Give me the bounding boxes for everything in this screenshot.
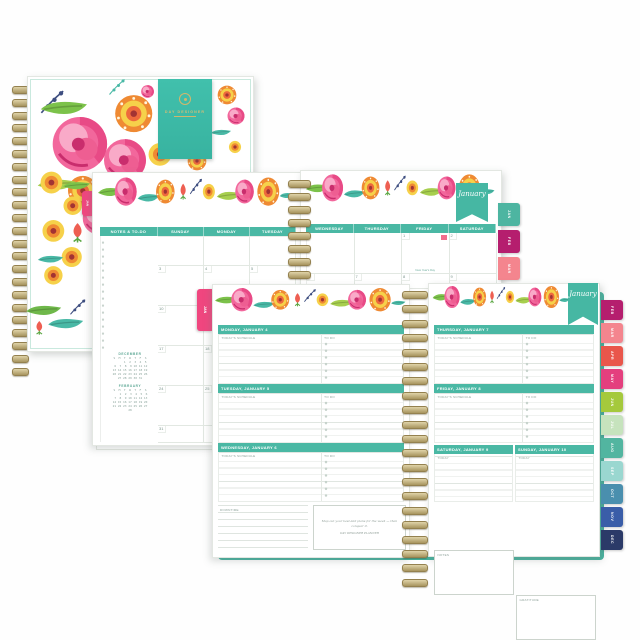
- month-tab-aug: AUG: [601, 438, 623, 458]
- todo-column: TO DO: [523, 334, 593, 383]
- weekly-right-day-blocks: THURSDAY, JANUARY 7TODAY'S SCHEDULETO DO…: [434, 325, 594, 443]
- day-body: TODAY'S SCHEDULETO DO: [434, 393, 594, 443]
- column-header: MONDAY: [204, 227, 250, 236]
- weekend-body: TODAY: [434, 454, 513, 502]
- date-number: 25: [204, 386, 212, 393]
- date-number: 10: [158, 306, 166, 313]
- monthly-notes-column: DECEMBERS M T W T F S 1 2 3 4 5 6 7 8 9 …: [100, 236, 160, 442]
- spiral-loop: [288, 271, 311, 279]
- day-cell: [204, 237, 250, 266]
- column-header: THURSDAY: [354, 224, 402, 233]
- downtime-section: DOWNTIME: [218, 505, 308, 549]
- day-header-bar: TUESDAY, JANUARY 5: [218, 384, 404, 393]
- schedule-column: TODAY'S SCHEDULE: [435, 393, 523, 442]
- month-tab-may: MAY: [601, 369, 623, 389]
- column-header: SUNDAY: [158, 227, 204, 236]
- todo-checkcircles: [324, 341, 329, 382]
- day-header-bar: FRIDAY, JANUARY 8: [434, 384, 594, 393]
- column-header: FRIDAY: [401, 224, 449, 233]
- date-number: 8: [402, 274, 410, 281]
- date-number: 5: [250, 266, 258, 273]
- today-label: TODAY: [519, 456, 530, 460]
- day-cell: 2: [450, 233, 498, 274]
- todo-label: TO DO: [526, 395, 537, 399]
- weekly-jan-side-tab: JAN: [197, 289, 213, 331]
- schedule-label: TODAY'S SCHEDULE: [222, 454, 256, 458]
- todo-checkcircles: [324, 400, 329, 441]
- gold-crest-icon: [179, 93, 191, 105]
- todo-checkcircles: [324, 459, 329, 500]
- day-body: TODAY'S SCHEDULETO DO: [434, 334, 594, 384]
- today-label: TODAY: [438, 456, 449, 460]
- cover-monogram-band: DAY DESIGNER: [158, 79, 212, 159]
- weekend-block: SATURDAY, JANUARY 9TODAY: [434, 445, 513, 502]
- weekly-day-block: WEDNESDAY, JANUARY 6TODAY'S SCHEDULETO D…: [218, 443, 404, 502]
- day-cell: 17: [158, 346, 204, 386]
- spiral-loop: [288, 245, 311, 253]
- notes-box: NOTES: [434, 550, 514, 595]
- todo-column: TO DO: [322, 393, 403, 442]
- day-body: TODAY'S SCHEDULETO DO: [218, 334, 404, 384]
- day-header-bar: SATURDAY, JANUARY 9: [434, 445, 513, 454]
- quote-line2: DAY DESIGNER PLANNER: [340, 531, 379, 536]
- spiral-loop: [402, 464, 428, 472]
- month-tab-apr: APR: [601, 346, 623, 366]
- date-number: 9: [450, 274, 458, 281]
- schedule-label: TODAY'S SCHEDULE: [438, 336, 472, 340]
- day-header-bar: THURSDAY, JANUARY 7: [434, 325, 594, 334]
- schedule-label: TODAY'S SCHEDULE: [438, 395, 472, 399]
- date-number: 1: [402, 233, 410, 240]
- spiral-loop: [402, 507, 428, 515]
- day-body: TODAY'S SCHEDULETO DO: [218, 452, 404, 502]
- column-header: SATURDAY: [449, 224, 497, 233]
- spiral-loop: [288, 180, 311, 188]
- weekly-spiral-binding: [402, 291, 428, 593]
- weekly-day-block: THURSDAY, JANUARY 7TODAY'S SCHEDULETO DO: [434, 325, 594, 384]
- spiral-loop: [288, 219, 311, 227]
- mini-calendar: DECEMBERS M T W T F S 1 2 3 4 5 6 7 8 9 …: [103, 352, 157, 380]
- mini-calendar-row: 27 28 29 30 31: [103, 377, 157, 381]
- todo-label: TO DO: [526, 336, 537, 340]
- mini-calendar-row: 28: [103, 409, 157, 413]
- todo-column: TO DO: [523, 393, 593, 442]
- spiral-loop: [288, 193, 311, 201]
- spiral-loop: [402, 320, 428, 328]
- spiral-loop: [402, 449, 428, 457]
- day-header-bar: MONDAY, JANUARY 4: [218, 325, 404, 334]
- weekly-left-day-blocks: MONDAY, JANUARY 4TODAY'S SCHEDULETO DOTU…: [218, 325, 404, 502]
- spiral-loop: [402, 478, 428, 486]
- spiral-loop: [402, 550, 428, 558]
- weekly-day-block: TUESDAY, JANUARY 5TODAY'S SCHEDULETO DO: [218, 384, 404, 443]
- spiral-loop: [402, 392, 428, 400]
- month-tab-mar: MAR: [498, 257, 520, 280]
- day-cell: [307, 233, 355, 274]
- monthly-left-header-row: NOTES & TO-DOSUNDAYMONDAYTUESDAY: [100, 227, 296, 236]
- spiral-loop: [402, 564, 428, 572]
- spiral-loop: [12, 355, 29, 363]
- weekend-block: SUNDAY, JANUARY 10TODAY: [515, 445, 594, 502]
- todo-checkcircles: [525, 341, 530, 382]
- date-number: 18: [204, 346, 212, 353]
- spiral-loop: [402, 349, 428, 357]
- month-tab-dec: DEC: [601, 530, 623, 550]
- day-cell: 24: [158, 386, 204, 426]
- spiral-loop: [402, 406, 428, 414]
- column-header: NOTES & TO-DO: [100, 227, 158, 236]
- date-number: 17: [158, 346, 166, 353]
- weekend-body: TODAY: [515, 454, 594, 502]
- monthly-right-header-row: WEDNESDAYTHURSDAYFRIDAYSATURDAY: [306, 224, 496, 233]
- spiral-loop: [402, 305, 428, 313]
- mini-calendar: FEBRUARYS M T W T F S 1 2 3 4 5 6 7 8 9 …: [103, 384, 157, 412]
- spiral-loop: [402, 492, 428, 500]
- spiral-loop: [402, 435, 428, 443]
- day-body: TODAY'S SCHEDULETO DO: [218, 393, 404, 443]
- schedule-column: TODAY'S SCHEDULE: [219, 334, 322, 383]
- month-tab-jul: JUL: [601, 415, 623, 435]
- day-cell: 1New Year's Day: [402, 233, 450, 274]
- month-row: 1New Year's Day2: [307, 233, 497, 274]
- spiral-loop: [288, 232, 311, 240]
- day-header-bar: SUNDAY, JANUARY 10: [515, 445, 594, 454]
- month-tab-feb: FEB: [498, 230, 520, 253]
- product-photo: DAY DESIGNER JAN January NOTES & TO-DOSU…: [0, 0, 640, 640]
- month-tab-nov: NOV: [601, 507, 623, 527]
- date-number: 24: [158, 386, 166, 393]
- schedule-column: TODAY'S SCHEDULE: [219, 393, 322, 442]
- spiral-loop: [402, 377, 428, 385]
- holiday-label: New Year's Day: [402, 268, 449, 272]
- spiral-loop: [402, 521, 428, 529]
- spiral-loop: [402, 291, 428, 299]
- quote-line1: Map out your best-laid plans for the wee…: [318, 519, 401, 529]
- gratitude-box: GRATITUDE: [516, 595, 596, 640]
- notes-label: NOTES: [438, 553, 450, 557]
- schedule-column: TODAY'S SCHEDULE: [435, 334, 523, 383]
- month-tab-jan: JAN: [498, 203, 520, 226]
- gratitude-label: GRATITUDE: [520, 598, 539, 602]
- month-tab-oct: OCT: [601, 484, 623, 504]
- spiral-loop: [402, 579, 428, 587]
- schedule-column: TODAY'S SCHEDULE: [219, 452, 322, 501]
- spiral-loop: [12, 368, 29, 376]
- day-cell: [355, 233, 403, 274]
- day-header-bar: WEDNESDAY, JANUARY 6: [218, 443, 404, 452]
- month-tab-jun: JUN: [601, 392, 623, 412]
- date-number: 7: [355, 274, 363, 281]
- weekly-day-block: FRIDAY, JANUARY 8TODAY'S SCHEDULETO DO: [434, 384, 594, 443]
- schedule-label: TODAY'S SCHEDULE: [222, 336, 256, 340]
- todo-label: TO DO: [324, 395, 335, 399]
- todo-column: TO DO: [322, 334, 403, 383]
- todo-label: TO DO: [324, 336, 335, 340]
- schedule-label: TODAY'S SCHEDULE: [222, 395, 256, 399]
- month-tab-sep: SEP: [601, 461, 623, 481]
- brand-rule: [174, 116, 196, 117]
- date-number: 3: [158, 266, 166, 273]
- holiday-flag: [441, 235, 447, 240]
- day-cell: [158, 237, 204, 266]
- spiral-loop: [402, 334, 428, 342]
- spiral-loop: [288, 258, 311, 266]
- date-number: 2: [450, 233, 458, 240]
- column-header: WEDNESDAY: [306, 224, 354, 233]
- month-tab-feb: FEB: [601, 300, 623, 320]
- date-number: 4: [204, 266, 212, 273]
- month-tab-mar: MAR: [601, 323, 623, 343]
- todo-label: TO DO: [324, 454, 335, 458]
- date-number: 31: [158, 426, 166, 433]
- todo-checkcircles: [525, 400, 530, 441]
- spiral-loop: [402, 363, 428, 371]
- weekly-day-block: MONDAY, JANUARY 4TODAY'S SCHEDULETO DO: [218, 325, 404, 384]
- weekend-blocks: SATURDAY, JANUARY 9TODAYSUNDAY, JANUARY …: [434, 445, 594, 502]
- month-row: [158, 237, 296, 266]
- todo-column: TO DO: [322, 452, 403, 501]
- downtime-label: DOWNTIME: [220, 508, 239, 512]
- notes-ruled-lines: [101, 238, 159, 350]
- weekly-month-tabs: FEBMARAPRMAYJUNJULAUGSEPOCTNOVDEC: [601, 300, 623, 553]
- day-cell: 31: [158, 426, 204, 443]
- mini-calendars: DECEMBERS M T W T F S 1 2 3 4 5 6 7 8 9 …: [103, 352, 157, 417]
- spiral-loop: [288, 206, 311, 214]
- quote-box: Map out your best-laid plans for the wee…: [313, 505, 406, 550]
- spiral-loop: [402, 536, 428, 544]
- brand-name: DAY DESIGNER: [158, 110, 212, 114]
- spiral-loop: [402, 421, 428, 429]
